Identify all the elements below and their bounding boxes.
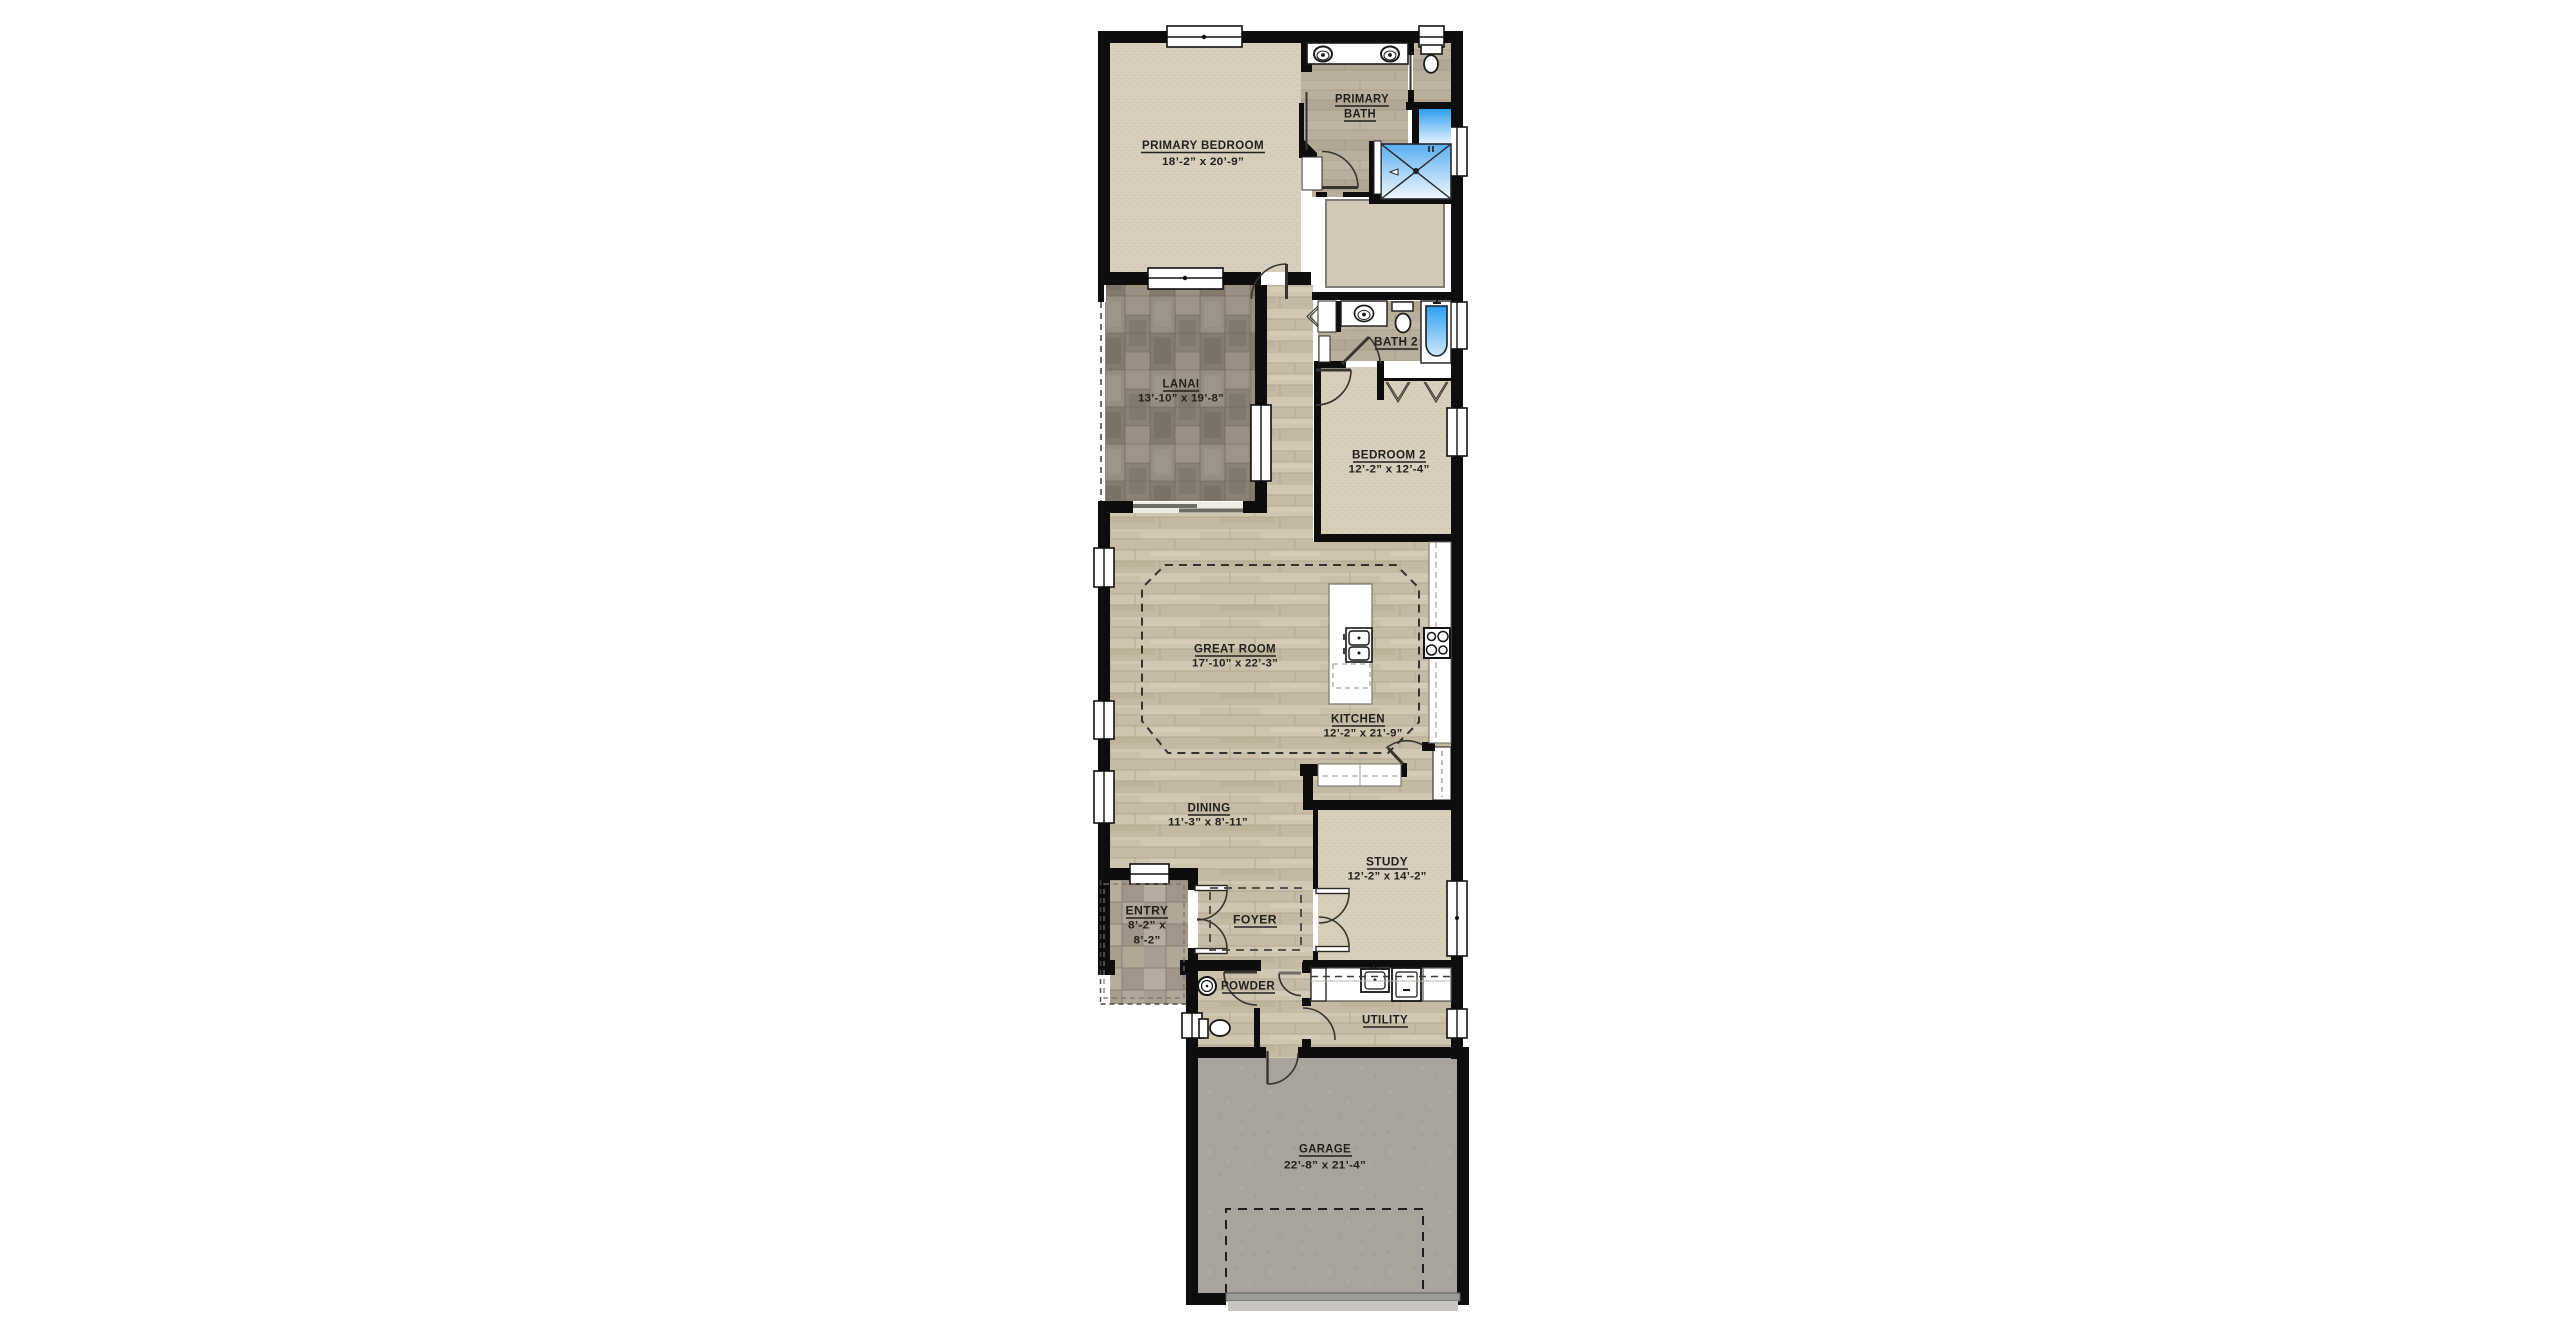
svg-text:BEDROOM 2: BEDROOM 2 xyxy=(1352,448,1426,462)
svg-text:12’-2” x 12’-4”: 12’-2” x 12’-4” xyxy=(1349,464,1430,476)
svg-text:LANAI: LANAI xyxy=(1163,377,1200,391)
svg-text:22’-8” x 21’-4”: 22’-8” x 21’-4” xyxy=(1284,1160,1366,1172)
svg-text:DINING: DINING xyxy=(1188,801,1231,815)
svg-text:GARAGE: GARAGE xyxy=(1299,1142,1351,1156)
svg-text:PRIMARY BEDROOM: PRIMARY BEDROOM xyxy=(1142,138,1264,152)
svg-text:UTILITY: UTILITY xyxy=(1362,1013,1408,1027)
svg-text:11’-3” x 8’-11”: 11’-3” x 8’-11” xyxy=(1168,817,1248,829)
svg-text:18’-2” x 20’-9”: 18’-2” x 20’-9” xyxy=(1162,156,1244,168)
svg-text:12’-2” x 14’-2”: 12’-2” x 14’-2” xyxy=(1348,871,1427,883)
svg-text:FOYER: FOYER xyxy=(1233,913,1277,927)
svg-text:BATH 2: BATH 2 xyxy=(1374,335,1418,349)
svg-text:POWDER: POWDER xyxy=(1221,979,1275,993)
svg-text:13’-10” x 19’-8”: 13’-10” x 19’-8” xyxy=(1138,393,1224,405)
svg-text:17’-10” x 22’-3”: 17’-10” x 22’-3” xyxy=(1192,658,1278,670)
svg-text:PRIMARY: PRIMARY xyxy=(1335,92,1389,106)
svg-text:ENTRY: ENTRY xyxy=(1126,904,1169,918)
svg-text:8’-2”: 8’-2” xyxy=(1134,935,1161,947)
svg-text:BATH: BATH xyxy=(1344,107,1376,121)
svg-text:8’-2” x: 8’-2” x xyxy=(1128,920,1167,932)
svg-text:STUDY: STUDY xyxy=(1366,855,1408,869)
svg-text:GREAT ROOM: GREAT ROOM xyxy=(1194,642,1276,656)
svg-text:12’-2” x 21’-9”: 12’-2” x 21’-9” xyxy=(1324,728,1403,740)
svg-text:KITCHEN: KITCHEN xyxy=(1331,712,1385,726)
